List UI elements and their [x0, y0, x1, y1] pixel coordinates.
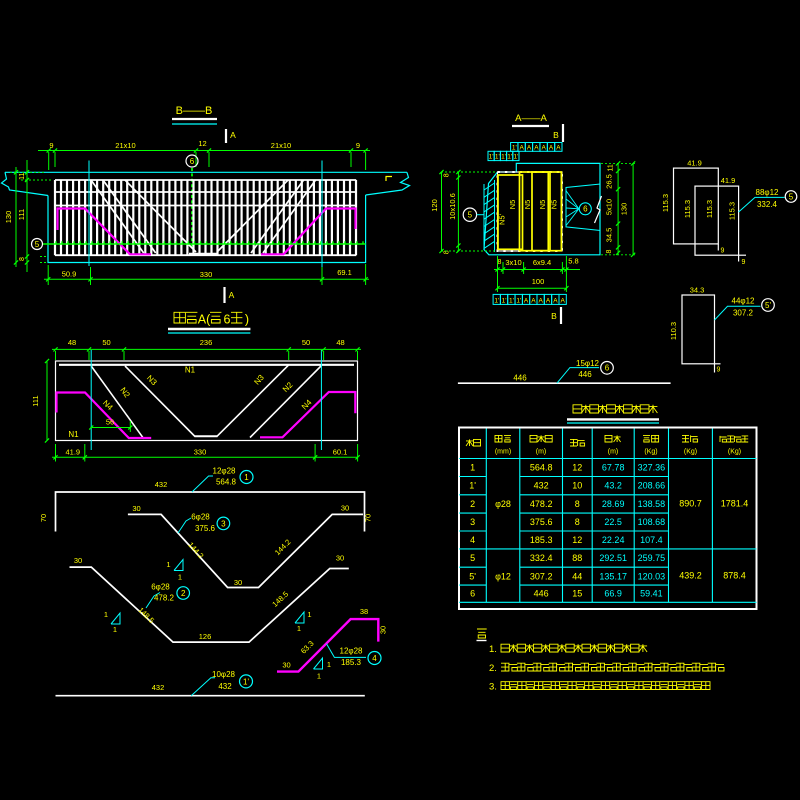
- svg-text:A: A: [549, 145, 554, 152]
- svg-text:44: 44: [572, 571, 582, 581]
- svg-text:A: A: [520, 145, 525, 152]
- svg-text:8: 8: [575, 517, 580, 527]
- svg-text:88φ12: 88φ12: [756, 188, 780, 197]
- svg-text:135.17: 135.17: [599, 571, 627, 581]
- svg-text:185.3: 185.3: [341, 658, 362, 667]
- svg-text:11: 11: [19, 172, 26, 179]
- svg-text:9: 9: [49, 141, 53, 150]
- svg-text:30: 30: [379, 626, 388, 634]
- svg-text:10x10.6: 10x10.6: [448, 193, 457, 220]
- svg-text:12: 12: [198, 139, 206, 148]
- svg-text:9: 9: [721, 248, 725, 255]
- svg-text:6: 6: [224, 313, 231, 327]
- svg-text:(mm): (mm): [495, 449, 511, 456]
- svg-text:69.1: 69.1: [337, 268, 352, 277]
- svg-text:1': 1': [494, 297, 499, 304]
- svg-text:5: 5: [468, 211, 473, 220]
- svg-text:70: 70: [364, 514, 373, 522]
- svg-text:1: 1: [297, 624, 301, 633]
- svg-text:15φ12: 15φ12: [576, 359, 600, 368]
- svg-text:111: 111: [31, 395, 40, 406]
- svg-text:5': 5': [765, 301, 771, 310]
- svg-text:(Kg): (Kg): [728, 449, 741, 456]
- svg-text:5: 5: [470, 553, 475, 563]
- svg-text:A: A: [531, 297, 536, 304]
- svg-text:3x10: 3x10: [505, 258, 521, 267]
- svg-text:21x10: 21x10: [115, 141, 135, 150]
- svg-text:12: 12: [572, 463, 582, 473]
- svg-text:A——A: A——A: [515, 113, 547, 124]
- svg-text:432: 432: [152, 683, 165, 692]
- svg-text:1': 1': [469, 481, 476, 491]
- svg-text:88: 88: [572, 553, 582, 563]
- svg-text:50.9: 50.9: [62, 270, 77, 279]
- svg-text:130: 130: [4, 211, 13, 224]
- svg-text:N1: N1: [68, 430, 79, 439]
- svg-text:N5: N5: [508, 200, 517, 210]
- svg-text:10: 10: [572, 481, 582, 491]
- svg-text:115.3: 115.3: [705, 200, 714, 218]
- svg-text:564.8: 564.8: [216, 478, 237, 487]
- svg-text:100: 100: [532, 277, 545, 286]
- svg-text:6: 6: [470, 589, 475, 599]
- svg-text:67.78: 67.78: [602, 463, 625, 473]
- svg-text:15: 15: [572, 589, 582, 599]
- svg-text:1: 1: [178, 573, 182, 582]
- svg-text:208.66: 208.66: [638, 481, 666, 491]
- svg-text:66.9: 66.9: [604, 589, 622, 599]
- svg-text:4: 4: [470, 535, 475, 545]
- svg-text:22.5: 22.5: [604, 517, 622, 527]
- svg-text:9: 9: [742, 259, 746, 266]
- svg-text:115.3: 115.3: [728, 202, 737, 220]
- svg-text:28.69: 28.69: [602, 499, 625, 509]
- svg-text:48: 48: [68, 338, 76, 347]
- svg-text:(m): (m): [536, 449, 547, 456]
- svg-text:6φ28: 6φ28: [191, 513, 210, 522]
- svg-text:38: 38: [360, 607, 368, 616]
- svg-text:332.4: 332.4: [757, 200, 778, 209]
- svg-text:30: 30: [336, 554, 344, 563]
- svg-text:1: 1: [166, 560, 170, 569]
- svg-text:236: 236: [200, 338, 213, 347]
- svg-text:30: 30: [234, 578, 242, 587]
- svg-text:41.9: 41.9: [687, 159, 702, 168]
- svg-text:A: A: [230, 130, 236, 140]
- svg-text:30: 30: [341, 504, 349, 513]
- svg-text:890.7: 890.7: [679, 499, 702, 509]
- svg-text:120: 120: [430, 199, 439, 212]
- svg-text:50: 50: [102, 338, 110, 347]
- svg-text:5': 5': [469, 571, 476, 581]
- svg-text:70: 70: [39, 514, 48, 522]
- svg-text:1': 1': [243, 677, 249, 686]
- svg-text:9: 9: [717, 367, 721, 374]
- svg-text:6φ28: 6φ28: [151, 583, 170, 592]
- svg-text:N5: N5: [523, 200, 532, 210]
- svg-text:A: A: [534, 145, 539, 152]
- svg-text:1': 1': [516, 297, 521, 304]
- svg-text:30: 30: [282, 661, 290, 670]
- svg-text:12φ28: 12φ28: [340, 647, 364, 656]
- svg-text:5x10: 5x10: [605, 199, 614, 215]
- svg-text:259.75: 259.75: [638, 553, 666, 563]
- svg-text:1': 1': [489, 154, 494, 161]
- svg-text:3: 3: [221, 519, 226, 528]
- svg-text:8: 8: [444, 173, 451, 177]
- svg-text:41.9: 41.9: [721, 176, 736, 185]
- svg-text:(m): (m): [608, 449, 619, 456]
- svg-text:2: 2: [470, 499, 475, 509]
- svg-text:φ28: φ28: [495, 499, 511, 509]
- svg-text:10φ28: 10φ28: [212, 670, 236, 679]
- svg-text:307.2: 307.2: [530, 571, 553, 581]
- svg-text:34.5: 34.5: [605, 228, 614, 243]
- svg-text:375.6: 375.6: [195, 524, 216, 533]
- svg-text:48: 48: [336, 338, 344, 347]
- svg-text:N5: N5: [538, 200, 547, 210]
- svg-text:1: 1: [317, 672, 321, 681]
- svg-text:126: 126: [199, 632, 212, 641]
- svg-text:1: 1: [244, 473, 249, 482]
- svg-text:111: 111: [17, 209, 26, 220]
- svg-text:26.5: 26.5: [605, 174, 614, 189]
- svg-text:): ): [245, 313, 249, 327]
- svg-text:11: 11: [608, 164, 615, 171]
- svg-text:A: A: [542, 145, 547, 152]
- svg-text:1: 1: [104, 610, 108, 619]
- svg-text:30: 30: [132, 504, 140, 513]
- svg-text:107.4: 107.4: [640, 535, 663, 545]
- svg-text:478.2: 478.2: [530, 499, 553, 509]
- svg-text:6x9.4: 6x9.4: [533, 258, 551, 267]
- svg-text:375.6: 375.6: [530, 517, 553, 527]
- svg-text:B: B: [551, 311, 557, 321]
- svg-text:50: 50: [302, 338, 310, 347]
- svg-text:60.1: 60.1: [333, 448, 348, 457]
- svg-text:5.8: 5.8: [568, 257, 578, 266]
- svg-text:1.: 1.: [489, 644, 497, 655]
- svg-text:1': 1': [512, 145, 517, 152]
- svg-text:1': 1': [495, 154, 500, 161]
- svg-text:185.3: 185.3: [530, 535, 553, 545]
- svg-text:1': 1': [502, 297, 507, 304]
- svg-text:478.2: 478.2: [154, 594, 175, 603]
- svg-text:1: 1: [470, 463, 475, 473]
- svg-text:B——B: B——B: [176, 105, 213, 117]
- svg-text:432: 432: [534, 481, 549, 491]
- svg-text:5: 5: [35, 240, 40, 249]
- svg-text:1: 1: [113, 625, 117, 634]
- svg-text:5: 5: [789, 192, 794, 201]
- svg-text:N1: N1: [185, 366, 196, 375]
- svg-text:(Kg): (Kg): [644, 449, 657, 456]
- svg-text:446: 446: [513, 374, 527, 383]
- svg-text:41.9: 41.9: [65, 448, 80, 457]
- svg-text:A: A: [556, 145, 561, 152]
- svg-text:A: A: [524, 297, 529, 304]
- svg-text:327.36: 327.36: [638, 463, 666, 473]
- svg-text:332.4: 332.4: [530, 553, 553, 563]
- svg-text:108.68: 108.68: [638, 517, 666, 527]
- svg-text:8: 8: [19, 257, 26, 261]
- svg-text:8: 8: [606, 249, 613, 253]
- svg-text:56: 56: [106, 418, 114, 427]
- svg-text:6: 6: [605, 364, 610, 373]
- svg-text:A: A: [527, 145, 532, 152]
- svg-text:120.03: 120.03: [638, 571, 666, 581]
- svg-text:115.3: 115.3: [683, 200, 692, 218]
- svg-text:138.58: 138.58: [638, 499, 666, 509]
- svg-text:(Kg): (Kg): [684, 449, 697, 456]
- svg-text:8: 8: [498, 259, 502, 266]
- svg-text:43.2: 43.2: [604, 481, 622, 491]
- svg-text:12: 12: [572, 535, 582, 545]
- svg-text:A: A: [561, 297, 566, 304]
- svg-text:34.3: 34.3: [690, 286, 705, 295]
- svg-text:1': 1': [501, 154, 506, 161]
- svg-text:2.: 2.: [489, 663, 497, 674]
- svg-text:446: 446: [534, 589, 549, 599]
- svg-text:1': 1': [513, 154, 518, 161]
- svg-text:6: 6: [583, 205, 588, 214]
- svg-text:1781.4: 1781.4: [721, 499, 749, 509]
- svg-text:3: 3: [470, 517, 475, 527]
- svg-text:22.24: 22.24: [602, 535, 625, 545]
- svg-text:N5': N5': [498, 213, 507, 225]
- svg-text:1': 1': [509, 297, 514, 304]
- svg-text:330: 330: [200, 270, 213, 279]
- svg-text:A: A: [546, 297, 551, 304]
- svg-text:446: 446: [578, 370, 592, 379]
- svg-text:8: 8: [575, 499, 580, 509]
- svg-text:N5: N5: [550, 200, 559, 210]
- svg-text:3.: 3.: [489, 682, 497, 693]
- svg-text:432: 432: [155, 480, 168, 489]
- svg-text:110.3: 110.3: [669, 322, 678, 340]
- svg-text:115.3: 115.3: [661, 194, 670, 212]
- svg-text:564.8: 564.8: [530, 463, 553, 473]
- svg-text:307.2: 307.2: [733, 309, 754, 318]
- svg-text:878.4: 878.4: [723, 571, 746, 581]
- svg-text:A: A: [229, 290, 235, 300]
- svg-text:B: B: [553, 130, 559, 140]
- svg-text:432: 432: [218, 682, 232, 691]
- svg-text:44φ12: 44φ12: [732, 297, 756, 306]
- svg-text:1: 1: [327, 660, 331, 669]
- svg-text:4: 4: [372, 654, 377, 663]
- svg-text:21x10: 21x10: [271, 141, 291, 150]
- svg-text:A: A: [539, 297, 544, 304]
- svg-text:9: 9: [356, 141, 360, 150]
- svg-text:A: A: [553, 297, 558, 304]
- svg-text:2: 2: [181, 589, 186, 598]
- svg-text:1': 1': [507, 154, 512, 161]
- svg-text:439.2: 439.2: [679, 571, 702, 581]
- svg-text:130: 130: [620, 203, 629, 216]
- svg-text:330: 330: [194, 448, 207, 457]
- svg-text:292.51: 292.51: [599, 553, 627, 563]
- svg-text:1: 1: [307, 610, 311, 619]
- svg-text:12φ28: 12φ28: [213, 467, 237, 476]
- svg-text:6: 6: [190, 157, 195, 166]
- svg-text:59.41: 59.41: [640, 589, 663, 599]
- svg-text:A(: A(: [198, 313, 211, 327]
- svg-text:φ12: φ12: [495, 572, 511, 582]
- svg-text:30: 30: [74, 556, 82, 565]
